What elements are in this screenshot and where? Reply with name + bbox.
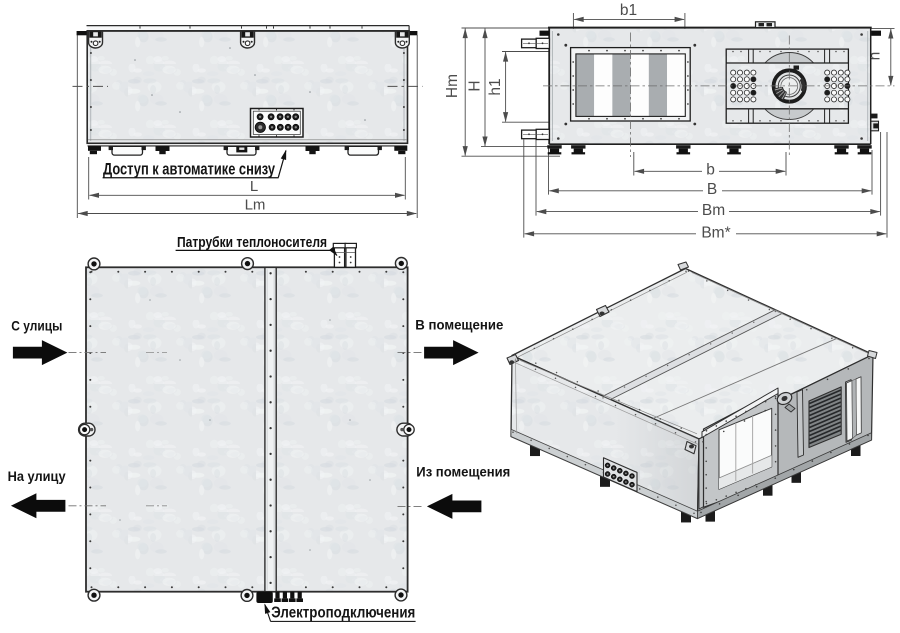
svg-text:b1: b1 xyxy=(620,2,637,19)
svg-text:Из помещения: Из помещения xyxy=(416,464,510,479)
svg-text:h1: h1 xyxy=(487,78,504,95)
svg-text:Электроподключения: Электроподключения xyxy=(271,604,415,621)
svg-text:b: b xyxy=(706,162,715,179)
svg-text:H: H xyxy=(467,80,484,91)
svg-text:На улицу: На улицу xyxy=(8,469,66,484)
svg-text:Bm*: Bm* xyxy=(701,224,730,241)
svg-text:L: L xyxy=(250,178,258,195)
svg-text:Hm: Hm xyxy=(444,74,461,98)
svg-text:С улицы: С улицы xyxy=(11,319,62,334)
svg-text:В помещение: В помещение xyxy=(415,317,503,332)
svg-text:Bm: Bm xyxy=(702,202,725,219)
svg-text:Lm: Lm xyxy=(245,197,266,214)
svg-text:Патрубки теплоносителя: Патрубки теплоносителя xyxy=(177,235,327,251)
svg-text:B: B xyxy=(707,181,717,198)
svg-text:Доступ к автоматике снизу: Доступ к автоматике снизу xyxy=(103,159,276,178)
